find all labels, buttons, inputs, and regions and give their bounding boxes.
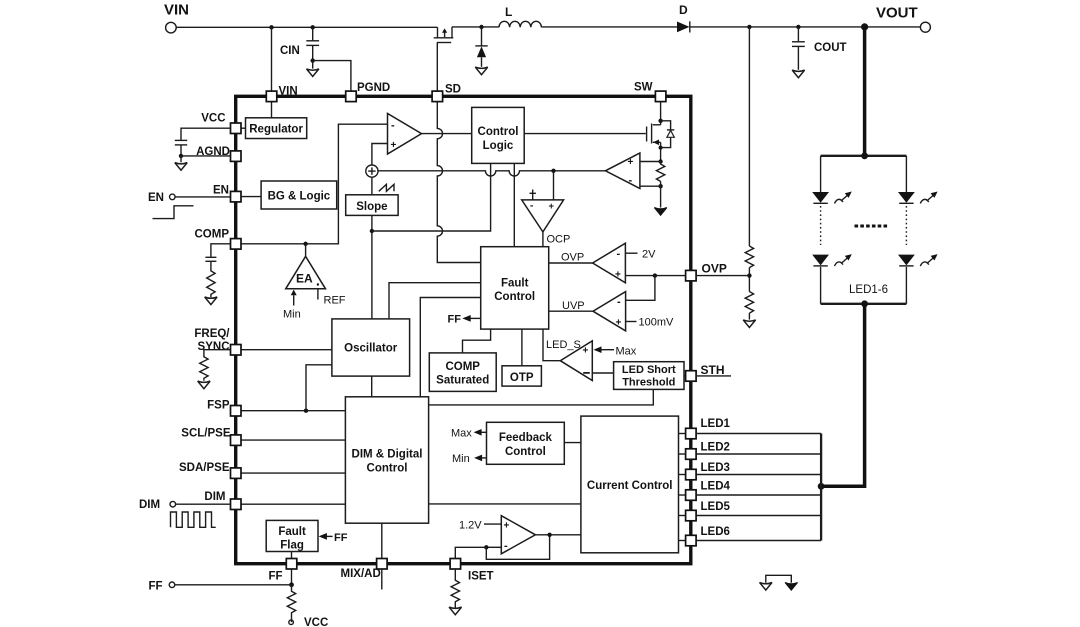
svg-text:Threshold: Threshold: [622, 377, 675, 389]
svg-text:SW: SW: [634, 82, 653, 94]
svg-text:EN: EN: [213, 185, 229, 197]
svg-text:+: +: [391, 140, 397, 151]
svg-text:DIM: DIM: [204, 491, 225, 503]
svg-text:FF: FF: [334, 532, 348, 544]
svg-text:FREQ/: FREQ/: [194, 328, 230, 340]
svg-text:Regulator: Regulator: [249, 123, 303, 135]
svg-text:MIX/AD: MIX/AD: [341, 568, 381, 580]
svg-text:FF: FF: [269, 571, 283, 583]
svg-text:1.2V: 1.2V: [459, 520, 482, 532]
svg-text:Slope: Slope: [356, 201, 387, 213]
svg-text:LED5: LED5: [701, 501, 731, 513]
svg-text:Min: Min: [283, 309, 301, 321]
svg-text:STH: STH: [701, 363, 725, 377]
svg-text:SDA/PSE: SDA/PSE: [179, 462, 230, 474]
svg-text:+: +: [615, 270, 621, 281]
svg-text:EN: EN: [148, 192, 164, 204]
svg-text:Fault: Fault: [501, 278, 529, 290]
svg-text:Max: Max: [616, 346, 637, 358]
svg-text:LED3: LED3: [701, 462, 730, 474]
svg-text:DIM & Digital: DIM & Digital: [352, 449, 423, 461]
svg-text:Control: Control: [367, 463, 408, 475]
svg-text:+: +: [616, 318, 622, 329]
svg-text:LED1-6: LED1-6: [849, 284, 888, 296]
svg-text:+: +: [583, 346, 589, 357]
svg-text:100mV: 100mV: [639, 317, 675, 329]
svg-text:+: +: [628, 157, 634, 168]
svg-text:VCC: VCC: [304, 617, 328, 627]
svg-text:Feedback: Feedback: [499, 432, 553, 444]
svg-text:-: -: [629, 175, 633, 187]
svg-text:LED2: LED2: [701, 442, 730, 454]
svg-text:REF: REF: [324, 295, 346, 307]
svg-text:VCC: VCC: [201, 113, 225, 125]
svg-text:PGND: PGND: [357, 82, 390, 94]
svg-text:-: -: [391, 120, 395, 132]
svg-text:VIN: VIN: [164, 2, 189, 19]
svg-text:SD: SD: [445, 84, 461, 96]
svg-text:DIM: DIM: [139, 499, 160, 511]
svg-text:FSP: FSP: [207, 400, 230, 412]
svg-text:VIN: VIN: [279, 86, 298, 98]
svg-text:Max: Max: [451, 428, 472, 440]
svg-text:L: L: [505, 5, 512, 19]
svg-text:COUT: COUT: [814, 42, 847, 54]
svg-text:Min: Min: [452, 453, 470, 465]
svg-text:Oscillator: Oscillator: [344, 343, 398, 355]
svg-text:LED1: LED1: [701, 418, 731, 430]
svg-text:CIN: CIN: [280, 45, 300, 57]
svg-text:OTP: OTP: [510, 372, 534, 384]
svg-text:LED Short: LED Short: [622, 364, 676, 376]
svg-text:SCL/PSE: SCL/PSE: [181, 428, 231, 440]
svg-text:OVP: OVP: [702, 262, 727, 276]
svg-text:D: D: [679, 3, 688, 17]
svg-text:Saturated: Saturated: [436, 374, 489, 386]
svg-text:LED6: LED6: [701, 526, 730, 538]
svg-text:+: +: [504, 521, 510, 532]
svg-text:-: -: [617, 296, 621, 308]
svg-text:+: +: [549, 201, 555, 212]
svg-text:OVP: OVP: [561, 252, 584, 264]
svg-text:-: -: [504, 540, 508, 552]
svg-text:LED4: LED4: [701, 481, 731, 493]
svg-text:ISET: ISET: [468, 571, 494, 583]
svg-text:OCP: OCP: [547, 234, 571, 246]
svg-text:UVP: UVP: [562, 300, 585, 312]
svg-text:COMP: COMP: [445, 361, 480, 373]
svg-text:Flag: Flag: [280, 540, 304, 552]
svg-text:Current Control: Current Control: [587, 480, 673, 492]
svg-text:VOUT: VOUT: [876, 5, 918, 22]
svg-text:COMP: COMP: [195, 229, 230, 241]
svg-text:BG & Logic: BG & Logic: [268, 190, 331, 202]
svg-text:FF: FF: [448, 314, 462, 326]
svg-text:-: -: [530, 201, 533, 212]
svg-text:Logic: Logic: [483, 140, 514, 152]
svg-text:Control: Control: [478, 126, 519, 138]
svg-text:LED_S: LED_S: [546, 339, 581, 351]
svg-text:-: -: [617, 248, 621, 260]
svg-text:SYNC: SYNC: [198, 341, 230, 353]
svg-text:2V: 2V: [642, 249, 656, 261]
svg-text:FF: FF: [149, 581, 163, 593]
svg-text:Fault: Fault: [278, 526, 306, 538]
svg-text:Control: Control: [505, 446, 546, 458]
svg-text:Control: Control: [494, 291, 535, 303]
svg-text:EA: EA: [296, 272, 313, 286]
